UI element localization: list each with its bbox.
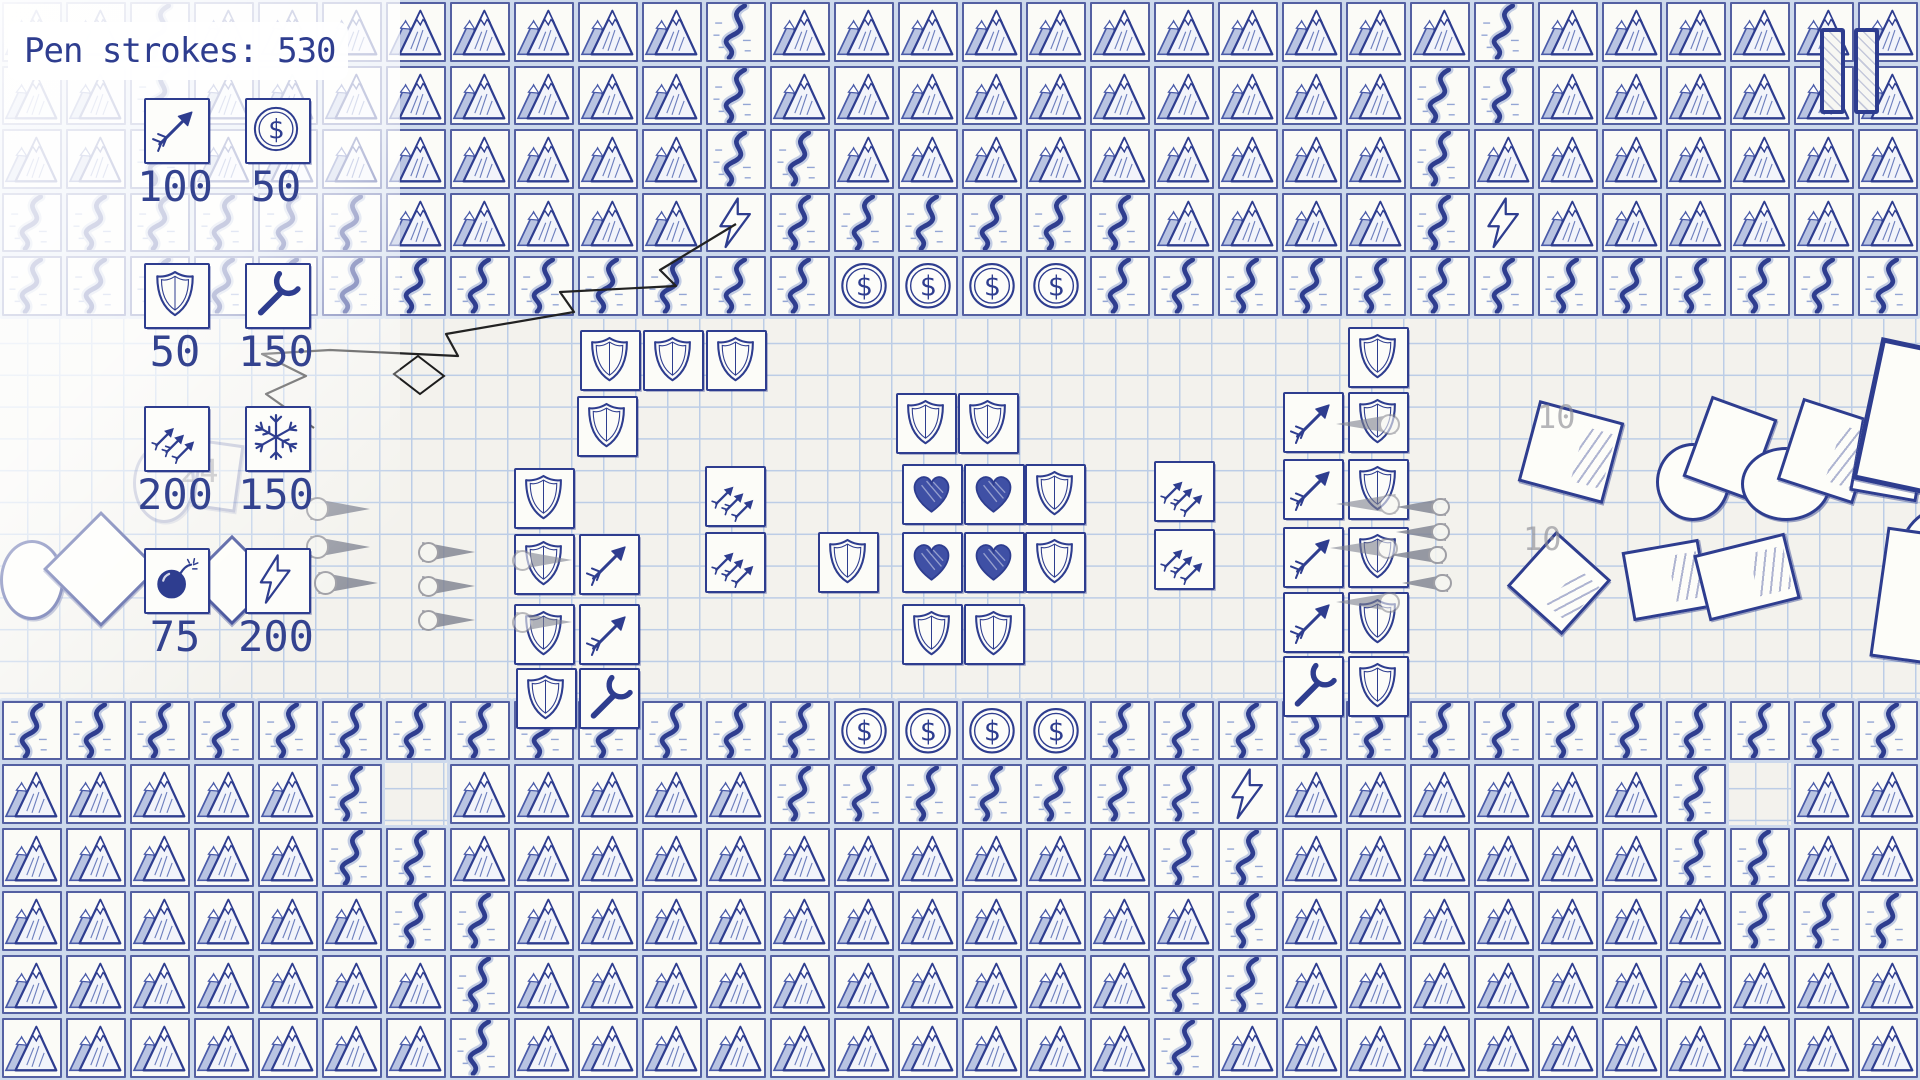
multiarrow-tower[interactable] xyxy=(1154,529,1215,590)
mountain-tile xyxy=(1794,828,1854,888)
river-tile xyxy=(1666,764,1726,824)
dart-head xyxy=(1431,523,1450,542)
river-tile xyxy=(896,762,960,826)
mountain-tile xyxy=(1280,889,1344,953)
river-tile xyxy=(1218,955,1278,1015)
mountain-tile xyxy=(64,826,128,890)
mountain-tile xyxy=(896,64,960,128)
mountain-tile xyxy=(512,64,576,128)
mountain-tile xyxy=(2,828,62,888)
mountain-tile xyxy=(962,828,1022,888)
river-tile xyxy=(450,1018,510,1078)
mountain-tile xyxy=(1728,127,1792,191)
river-tile xyxy=(962,193,1022,253)
paper-tile xyxy=(1088,635,1152,699)
mountain-tile xyxy=(1856,191,1920,255)
river-tile xyxy=(1410,66,1470,126)
mountain-tile xyxy=(256,826,320,890)
mountain-tile xyxy=(1728,953,1792,1017)
mountain-tile xyxy=(1730,129,1790,189)
shield-icon xyxy=(148,267,202,321)
river-tile xyxy=(1538,256,1598,316)
shop-item-shield-wall[interactable] xyxy=(144,263,210,329)
mountain-tile xyxy=(258,891,318,951)
paper-tile xyxy=(0,635,64,699)
mountain-tile xyxy=(66,891,126,951)
mountain-tile xyxy=(320,953,384,1017)
mountain-tile xyxy=(514,828,574,888)
mountain-tile xyxy=(514,764,574,824)
river-tile xyxy=(320,254,384,318)
dart-enemy xyxy=(1396,498,1448,516)
mountain-tile xyxy=(386,955,446,1015)
mountain-tile xyxy=(130,1018,190,1078)
mountain-tile xyxy=(1536,762,1600,826)
mountain-tile xyxy=(64,953,128,1017)
mountain-tile xyxy=(1344,953,1408,1017)
shop-item-freeze[interactable] xyxy=(245,406,311,472)
mountain-tile xyxy=(1602,129,1662,189)
river-tile xyxy=(1154,1018,1214,1078)
river-tile xyxy=(1408,127,1472,191)
shop-price-freeze: 150 xyxy=(206,474,346,516)
shield-tower[interactable] xyxy=(514,468,575,529)
river-tile xyxy=(1856,254,1920,318)
mountain-tile xyxy=(640,64,704,128)
mountain-tile xyxy=(1728,1016,1792,1080)
mountain-tile xyxy=(576,127,640,191)
river-tile xyxy=(1088,191,1152,255)
mountain-tile xyxy=(1024,0,1088,64)
mountain-tile xyxy=(64,762,128,826)
river-tile xyxy=(448,889,512,953)
dart-head xyxy=(512,612,533,633)
mountain-tile xyxy=(386,1018,446,1078)
arrow-tower[interactable] xyxy=(1283,459,1344,520)
shop-item-multi-arrow-tower[interactable] xyxy=(144,406,210,472)
mountain-tile xyxy=(768,889,832,953)
mountain-tile xyxy=(1090,828,1150,888)
heart-tower[interactable] xyxy=(964,532,1025,593)
mountain-tile xyxy=(448,0,512,64)
shield-tower[interactable] xyxy=(1348,656,1409,717)
mountain-tile xyxy=(1538,1018,1598,1078)
mountain-tile xyxy=(386,129,446,189)
paper-tile xyxy=(1216,572,1280,636)
multiarrow-tower[interactable] xyxy=(705,466,766,527)
mountain-tile xyxy=(1344,762,1408,826)
coin-tile xyxy=(1024,254,1088,318)
arrow-tower[interactable] xyxy=(579,604,640,665)
shield-tower[interactable] xyxy=(818,532,879,593)
coin-tile xyxy=(898,701,958,761)
river-tile xyxy=(1600,699,1664,763)
dart-enemy xyxy=(1402,574,1450,592)
river-tile xyxy=(1794,701,1854,761)
shield-tower[interactable] xyxy=(706,330,767,391)
mountain-tile xyxy=(448,64,512,128)
mountain-tile xyxy=(194,891,254,951)
river-tile xyxy=(1216,699,1280,763)
river-tile xyxy=(706,256,766,316)
mountain-tile xyxy=(1664,191,1728,255)
coin-tile xyxy=(896,254,960,318)
mountain-tile xyxy=(514,955,574,1015)
paper-tile xyxy=(1152,381,1216,445)
mountain-tile xyxy=(1600,826,1664,890)
mountain-tile xyxy=(704,953,768,1017)
mountain-tile xyxy=(1344,0,1408,64)
coin-tile xyxy=(834,701,894,761)
arrow-tower[interactable] xyxy=(1283,392,1344,453)
river-tile xyxy=(1408,699,1472,763)
mountain-tile xyxy=(704,762,768,826)
mountain-tile xyxy=(1858,1018,1918,1078)
mountain-tile xyxy=(128,762,192,826)
mountain-tile xyxy=(1408,1016,1472,1080)
river-tile xyxy=(768,254,832,318)
paper-tile xyxy=(1408,635,1472,699)
river-tile xyxy=(1152,826,1216,890)
paper-tile xyxy=(1088,381,1152,445)
mountain-tile xyxy=(1538,66,1598,126)
mountain-tile xyxy=(1730,1018,1790,1078)
shield-tower[interactable] xyxy=(643,330,704,391)
river-tile xyxy=(1152,762,1216,826)
shield-tower[interactable] xyxy=(580,330,641,391)
river-tile xyxy=(448,953,512,1017)
mountain-tile xyxy=(1408,826,1472,890)
shield-tower[interactable] xyxy=(964,604,1025,665)
paper-tile xyxy=(1728,762,1792,826)
shop-item-lightning-tower[interactable] xyxy=(245,548,311,614)
river-tile xyxy=(514,256,574,316)
river-tile xyxy=(1410,701,1470,761)
river-tile xyxy=(642,256,702,316)
mountain-tile xyxy=(258,1018,318,1078)
river-tile xyxy=(0,254,64,318)
mountain-tile xyxy=(1282,2,1342,62)
paper-tile xyxy=(1216,381,1280,445)
mountain-tile xyxy=(962,129,1022,189)
river-tile xyxy=(1410,129,1470,189)
paper-tile xyxy=(0,381,64,445)
mountain-tile xyxy=(1538,2,1598,62)
mountain-tile xyxy=(1474,129,1534,189)
river-tile xyxy=(0,699,64,763)
mountain-tile xyxy=(64,889,128,953)
paper-tile xyxy=(640,508,704,572)
paper-tile xyxy=(0,318,64,382)
shield-tower[interactable] xyxy=(896,393,957,454)
lightning-icon xyxy=(249,552,303,606)
mountain-tile xyxy=(578,129,638,189)
mountain-tile xyxy=(1664,0,1728,64)
dart-enemy xyxy=(1336,494,1398,514)
mountain-tile xyxy=(1344,1016,1408,1080)
mountain-tile xyxy=(642,2,702,62)
shield-tower[interactable] xyxy=(958,393,1019,454)
lightning-tower-tile xyxy=(1472,191,1536,255)
river-tile xyxy=(1472,64,1536,128)
mountain-tile xyxy=(960,953,1024,1017)
mountain-tile xyxy=(1472,953,1536,1017)
mountain-tile xyxy=(1026,1018,1086,1078)
mountain-tile xyxy=(322,1018,382,1078)
mountain-tile xyxy=(320,1016,384,1080)
mountain-tile xyxy=(194,955,254,1015)
arrow-icon xyxy=(582,607,635,660)
mountain-tile xyxy=(1730,66,1790,126)
river-tile xyxy=(834,193,894,253)
river-tile xyxy=(1536,699,1600,763)
paper-tile xyxy=(1600,635,1664,699)
heart-icon xyxy=(967,535,1020,588)
mountain-tile xyxy=(384,191,448,255)
mountain-tile xyxy=(1410,955,1470,1015)
arrow-icon xyxy=(1286,462,1339,515)
mountain-tile xyxy=(576,953,640,1017)
dart-head xyxy=(1431,498,1450,517)
mountain-tile xyxy=(578,828,638,888)
mountain-tile xyxy=(1536,191,1600,255)
river-tile xyxy=(384,699,448,763)
mountain-tile xyxy=(1664,64,1728,128)
mountain-tile xyxy=(194,1018,254,1078)
shield-tower[interactable] xyxy=(1025,464,1086,525)
mountain-tile xyxy=(1664,889,1728,953)
paper-tile xyxy=(832,635,896,699)
river-tile xyxy=(1216,254,1280,318)
shop-item-arrow-tower[interactable] xyxy=(144,98,210,164)
mountain-tile xyxy=(384,64,448,128)
pause-button[interactable] xyxy=(1820,28,1892,118)
river-tile xyxy=(1154,701,1214,761)
river-tile xyxy=(320,826,384,890)
mountain-tile xyxy=(450,764,510,824)
river-tile xyxy=(578,256,638,316)
mountain-tile xyxy=(1536,826,1600,890)
mountain-tile xyxy=(2,955,62,1015)
wrench-tower[interactable] xyxy=(579,668,640,729)
mountain-tile xyxy=(66,1018,126,1078)
multiarrow-tower[interactable] xyxy=(705,532,766,593)
mountain-tile xyxy=(1856,127,1920,191)
river-tile xyxy=(1538,701,1598,761)
mountain-tile xyxy=(1730,955,1790,1015)
mountain-tile xyxy=(1344,127,1408,191)
shield-tower[interactable] xyxy=(577,396,638,457)
mountain-tile xyxy=(832,1016,896,1080)
dart-head xyxy=(418,610,439,631)
mountain-tile xyxy=(450,193,510,253)
shield-tower[interactable] xyxy=(1025,532,1086,593)
river-tile xyxy=(384,889,448,953)
paper-tile xyxy=(1728,318,1792,382)
mountain-tile xyxy=(514,891,574,951)
paper-tile xyxy=(448,318,512,382)
mountain-tile xyxy=(1858,764,1918,824)
mountain-tile xyxy=(1666,193,1726,253)
shield-tower[interactable] xyxy=(516,668,577,729)
river-tile xyxy=(1216,953,1280,1017)
mountain-tile xyxy=(1600,64,1664,128)
mountain-tile xyxy=(258,764,318,824)
mountain-tile xyxy=(768,1016,832,1080)
mountain-tile xyxy=(1024,64,1088,128)
mountain-tile xyxy=(1282,129,1342,189)
mountain-tile xyxy=(1538,764,1598,824)
mountain-tile xyxy=(896,0,960,64)
paper-tile xyxy=(1024,635,1088,699)
coin-tile xyxy=(962,256,1022,316)
mountain-tile xyxy=(128,953,192,1017)
lightning-tower-tile xyxy=(706,193,766,253)
heart-tower[interactable] xyxy=(902,464,963,525)
mountain-tile xyxy=(512,889,576,953)
mountain-tile xyxy=(640,762,704,826)
mountain-tile xyxy=(576,191,640,255)
mountain-tile xyxy=(1472,826,1536,890)
mountain-tile xyxy=(514,66,574,126)
mountain-tile xyxy=(1346,828,1406,888)
mountain-tile xyxy=(1794,193,1854,253)
mountain-tile xyxy=(578,66,638,126)
mountain-tile xyxy=(770,955,830,1015)
mountain-tile xyxy=(1602,2,1662,62)
mountain-tile xyxy=(386,66,446,126)
river-tile xyxy=(64,254,128,318)
mountain-tile xyxy=(640,826,704,890)
mountain-tile xyxy=(1024,889,1088,953)
river-tile xyxy=(1730,256,1790,316)
mountain-tile xyxy=(384,953,448,1017)
bomb-icon xyxy=(148,552,202,606)
river-tile xyxy=(768,127,832,191)
mountain-tile xyxy=(832,0,896,64)
river-tile xyxy=(1408,254,1472,318)
mountain-tile xyxy=(1282,828,1342,888)
mountain-tile xyxy=(834,1018,894,1078)
paper-tile xyxy=(832,318,896,382)
river-tile xyxy=(1218,828,1278,888)
mountain-tile xyxy=(1858,129,1918,189)
mountain-tile xyxy=(1858,193,1918,253)
mountain-tile xyxy=(1600,762,1664,826)
mountain-tile xyxy=(384,1016,448,1080)
pen-strokes-counter: Pen strokes: 530 xyxy=(8,22,348,80)
shield-icon xyxy=(519,671,572,724)
mountain-tile xyxy=(898,66,958,126)
dart-head xyxy=(1379,592,1400,613)
river-tile xyxy=(450,256,510,316)
paper-tile xyxy=(1216,445,1280,509)
shop-item-wrench-repair[interactable] xyxy=(245,263,311,329)
mountain-tile xyxy=(1152,127,1216,191)
mountain-tile xyxy=(576,0,640,64)
mountain-tile xyxy=(0,953,64,1017)
mountain-tile xyxy=(1792,762,1856,826)
arrow-tower[interactable] xyxy=(1283,592,1344,653)
mountain-tile xyxy=(128,889,192,953)
mountain-tile xyxy=(1472,762,1536,826)
river-tile xyxy=(1152,953,1216,1017)
river-tile xyxy=(706,66,766,126)
river-tile xyxy=(768,699,832,763)
mountain-tile xyxy=(1026,891,1086,951)
river-tile xyxy=(1730,828,1790,888)
multiarrow-tower[interactable] xyxy=(1154,461,1215,522)
shop-item-bomb[interactable] xyxy=(144,548,210,614)
mountain-tile xyxy=(770,66,830,126)
mountain-tile xyxy=(1410,2,1470,62)
mountain-tile xyxy=(1280,762,1344,826)
river-tile xyxy=(704,699,768,763)
river-tile xyxy=(1728,826,1792,890)
arrow-tower[interactable] xyxy=(579,534,640,595)
shop-item-coin[interactable] xyxy=(245,98,311,164)
mountain-tile xyxy=(1602,193,1662,253)
paper-tile xyxy=(832,381,896,445)
mountain-tile xyxy=(1282,1018,1342,1078)
paper-tile xyxy=(640,572,704,636)
coin-tile xyxy=(1026,256,1086,316)
mountain-tile xyxy=(256,889,320,953)
mountain-tile xyxy=(1664,953,1728,1017)
mountain-tile xyxy=(578,891,638,951)
paper-tile xyxy=(1408,381,1472,445)
mountain-tile xyxy=(1152,64,1216,128)
mountain-tile xyxy=(1474,1018,1534,1078)
mountain-tile xyxy=(0,1016,64,1080)
mountain-tile xyxy=(576,64,640,128)
river-tile xyxy=(1474,66,1534,126)
river-tile xyxy=(1474,701,1534,761)
mountain-tile xyxy=(1216,191,1280,255)
mountain-tile xyxy=(768,64,832,128)
mountain-tile xyxy=(1792,191,1856,255)
heart-tower[interactable] xyxy=(902,532,963,593)
mountain-tile xyxy=(1346,193,1406,253)
mountain-tile xyxy=(1090,66,1150,126)
mountain-tile xyxy=(258,955,318,1015)
river-tile xyxy=(704,64,768,128)
mountain-tile xyxy=(1666,2,1726,62)
wrench-tower[interactable] xyxy=(1283,656,1344,717)
mountain-tile xyxy=(2,129,62,189)
paper-tile xyxy=(1152,635,1216,699)
shield-tower[interactable] xyxy=(902,604,963,665)
snowflake-icon xyxy=(249,410,303,464)
shield-icon xyxy=(1351,659,1404,712)
mountain-tile xyxy=(1088,127,1152,191)
river-tile xyxy=(1216,826,1280,890)
mountain-tile xyxy=(1344,889,1408,953)
mountain-tile xyxy=(1026,2,1086,62)
river-tile xyxy=(1154,256,1214,316)
mountain-tile xyxy=(1666,891,1726,951)
river-tile xyxy=(450,701,510,761)
river-tile xyxy=(1856,699,1920,763)
mountain-tile xyxy=(1280,0,1344,64)
paper-tile xyxy=(1024,318,1088,382)
heart-tower[interactable] xyxy=(964,464,1025,525)
shield-icon xyxy=(1028,535,1081,588)
shield-tower[interactable] xyxy=(1348,327,1409,388)
mountain-tile xyxy=(960,1016,1024,1080)
dart-head xyxy=(1379,414,1400,435)
mountain-tile xyxy=(1026,66,1086,126)
